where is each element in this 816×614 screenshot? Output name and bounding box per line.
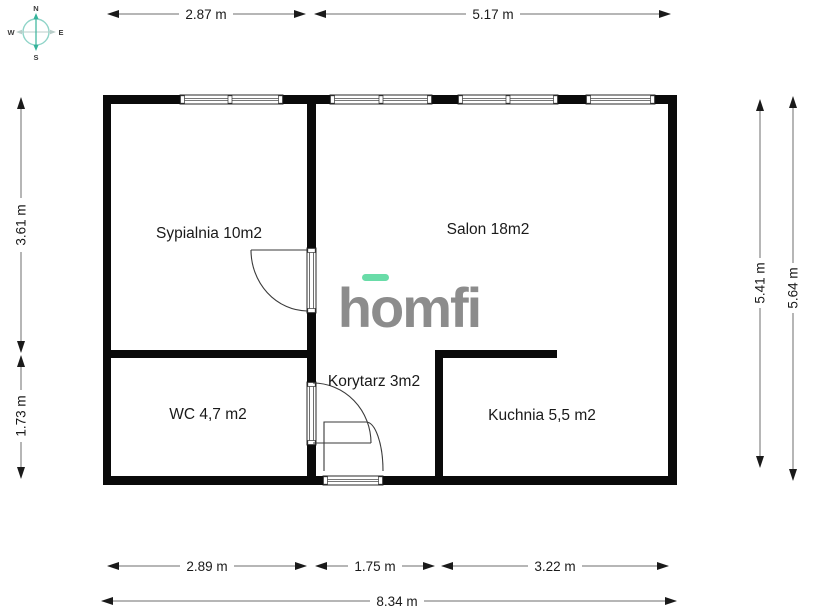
room-label-salon: Salon 18m2: [447, 221, 530, 238]
door-frame-bedroom: [307, 248, 316, 313]
compass-label-s: S: [33, 53, 38, 62]
dimension-bottom-2: 1.75 m: [316, 559, 434, 574]
dim-label: 5.17 m: [472, 7, 513, 22]
dimension-top-1: 2.87 m: [108, 7, 305, 22]
wall-salon-kitchen: [435, 350, 557, 358]
compass-e-arrow: [50, 30, 56, 34]
wall-top-seg: [432, 95, 458, 104]
dim-label: 2.89 m: [186, 559, 227, 574]
floor-plan-canvas: N S W E 2.87 m 5.17 m 3.61 m 1.73 m: [0, 0, 816, 614]
homfi-logo-accent-bar: [362, 274, 389, 281]
dim-label: 3.61 m: [14, 204, 29, 245]
wall-corridor-kitchen: [435, 350, 443, 476]
dim-label: 2.87 m: [185, 7, 226, 22]
door-arc-entrance: [324, 422, 383, 471]
wall-interior-vertical-seg: [307, 313, 316, 382]
dim-label: 3.22 m: [534, 559, 575, 574]
dim-label: 1.75 m: [354, 559, 395, 574]
dimension-left-1: 3.61 m: [14, 98, 29, 352]
wall-right: [668, 95, 677, 485]
room-label-kuchnia: Kuchnia 5,5 m2: [488, 407, 596, 424]
dimension-right-1: 5.41 m: [753, 100, 768, 467]
door-arc-bedroom: [251, 250, 307, 311]
compass-s-arrow: [34, 45, 39, 51]
dim-label: 5.64 m: [786, 267, 801, 308]
door-frame-wc: [307, 382, 316, 445]
door-frame-entrance: [323, 476, 383, 485]
room-label-korytarz: Korytarz 3m2: [328, 373, 420, 390]
compass-label-e: E: [58, 28, 63, 37]
wall-left: [103, 95, 111, 485]
wall-interior-vertical-seg: [307, 104, 316, 248]
room-label-wc: WC 4,7 m2: [169, 406, 247, 423]
window-icon: [586, 95, 655, 104]
dimension-right-2: 5.64 m: [786, 97, 801, 480]
floor-plan-page: N S W E 2.87 m 5.17 m 3.61 m 1.73 m: [0, 0, 816, 614]
room-label-sypialnia: Sypialnia 10m2: [156, 225, 262, 242]
dimension-left-2: 1.73 m: [14, 356, 29, 478]
compass-n-arrow: [34, 13, 39, 19]
wall-bottom-seg: [103, 476, 323, 485]
dim-label: 1.73 m: [14, 395, 29, 436]
compass-label-w: W: [7, 28, 15, 37]
compass-w-arrow: [16, 30, 22, 34]
compass-rose-icon: N S W E: [7, 4, 63, 62]
homfi-logo: homfi: [338, 274, 480, 339]
door-arc-wc: [313, 383, 371, 443]
dim-label: 5.41 m: [753, 262, 768, 303]
dim-label: 8.34 m: [376, 594, 417, 609]
dimension-bottom-3: 3.22 m: [442, 559, 668, 574]
dimension-top-2: 5.17 m: [315, 7, 670, 22]
homfi-logo-text: homfi: [338, 276, 480, 339]
wall-top-seg: [103, 95, 180, 104]
dimension-bottom-1: 2.89 m: [108, 559, 306, 574]
wall-top-seg: [558, 95, 586, 104]
wall-top-seg: [283, 95, 330, 104]
wall-interior-vertical-seg: [307, 445, 316, 476]
wall-bedroom-wc: [103, 350, 316, 358]
dimension-overall-width: 8.34 m: [102, 594, 676, 609]
compass-label-n: N: [33, 4, 38, 13]
wall-bottom-seg: [383, 476, 677, 485]
